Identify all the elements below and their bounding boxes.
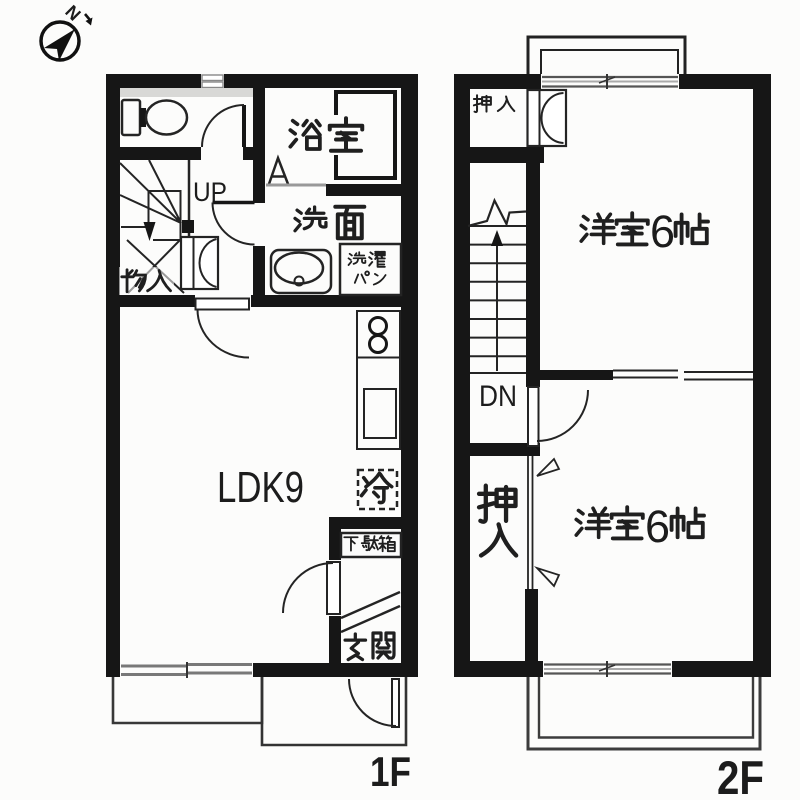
svg-text:UP: UP xyxy=(193,177,227,207)
svg-text:6: 6 xyxy=(645,501,670,552)
svg-text:LDK9: LDK9 xyxy=(217,463,304,512)
svg-text:6: 6 xyxy=(650,206,675,257)
svg-text:DN: DN xyxy=(479,380,517,413)
svg-text:1F: 1F xyxy=(370,748,411,795)
svg-text:2F: 2F xyxy=(717,751,764,800)
